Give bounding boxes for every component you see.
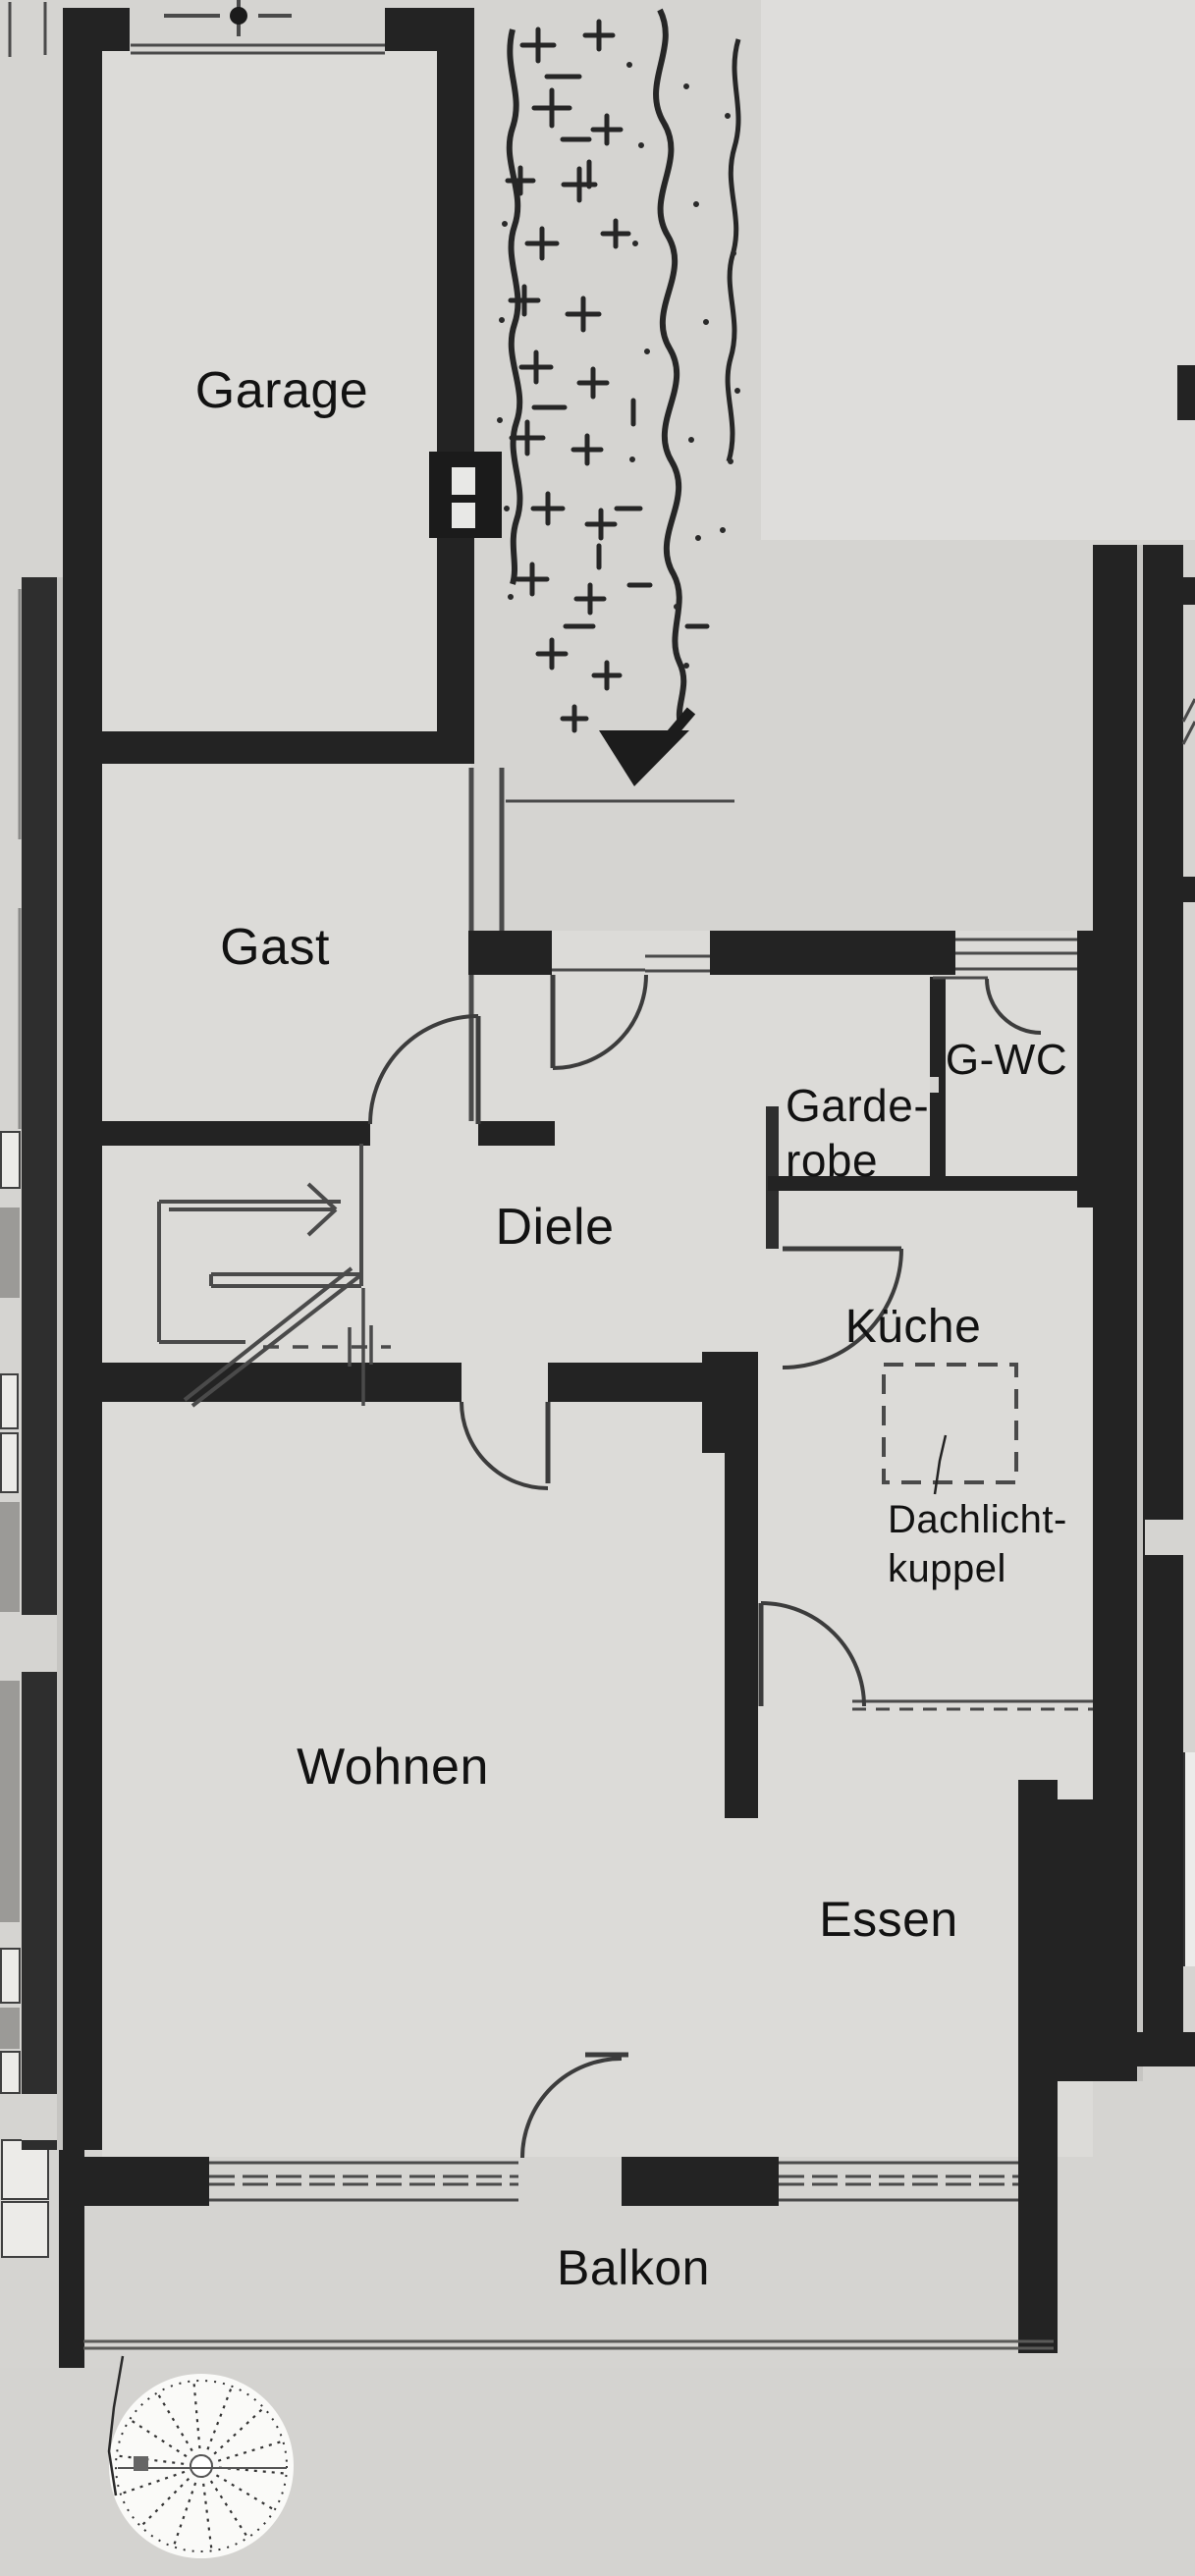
wall-party-inner (1093, 545, 1137, 2081)
wall-right-stub-b (1183, 877, 1195, 902)
floorplan-scan: Garage Gast Diele Garde- robe G-WC Küche… (0, 0, 1195, 2576)
wall-wohnen-essen-divider (725, 1394, 758, 1818)
wall-neighbor-balcony-stub (1093, 2032, 1195, 2066)
room-label-essen: Essen (819, 1895, 957, 1944)
wall-diele-south-a (102, 1363, 462, 1402)
neighbor-window-box (2, 2202, 48, 2257)
neighbor-wall-piece (0, 1207, 20, 1298)
right-edge-window-mark (1183, 699, 1195, 744)
wall-garage-east (437, 8, 474, 764)
room-label-diele: Diele (496, 1202, 615, 1253)
annotation-label-dachlichtkuppel-line2: kuppel (888, 1549, 1006, 1588)
wall-garage-south (63, 731, 474, 764)
neighbor-wall-piece (0, 2008, 20, 2049)
wall-front-left (468, 931, 552, 975)
wall-garage-top-right (385, 8, 437, 51)
room-label-wohnen: Wohnen (297, 1742, 489, 1793)
wall-joint-left (57, 577, 63, 2150)
fixture-window-b (452, 503, 475, 528)
wall-shaft (1058, 1799, 1093, 2081)
room-label-gast: Gast (220, 922, 330, 973)
spiral-stair-newel (190, 2455, 212, 2477)
room-label-garage: Garage (195, 365, 368, 416)
neighbor-wall-window-gap (22, 1615, 57, 1672)
spiral-stair-post (134, 2456, 148, 2471)
south-window-mid-lines (209, 2176, 1018, 2184)
wall-essen-east (1018, 1780, 1058, 2353)
garage-fixture-box (429, 452, 502, 538)
wall-neighbor-left (22, 577, 57, 2150)
south-window-lines (209, 2163, 1018, 2200)
neighbor-wall-piece (0, 1502, 20, 1612)
wall-garage-top-left (63, 8, 130, 51)
hedge-wavy-left (510, 29, 520, 584)
garage-door-lines (131, 45, 385, 53)
survey-cross (164, 0, 292, 36)
neighbor-window-box (1, 1433, 18, 1492)
wall-gwc-east (1077, 931, 1095, 1207)
dimension-ticks (10, 2, 45, 57)
annotation-label-dachlichtkuppel-line1: Dachlicht- (888, 1500, 1067, 1539)
floorplan-drawing (0, 0, 1195, 2576)
neighbor-wall-window-gap (22, 2094, 57, 2140)
neighbor-window-box (1, 2052, 20, 2093)
neighbor-wall-piece (0, 1681, 20, 1922)
garden-path-texture (497, 10, 740, 786)
wall-south-pillar-mid (622, 2157, 779, 2206)
room-label-gwc: G-WC (946, 1039, 1067, 1082)
hedge-wavy-right (656, 10, 683, 726)
wall-party-outer (1143, 545, 1183, 2066)
vestibule-partition (471, 768, 502, 931)
hedge-wavy-outer (728, 39, 738, 461)
wall-right-edge-block (1177, 365, 1195, 420)
wall-west (63, 8, 102, 2150)
entrance-arrow (599, 730, 689, 786)
garderobe-divider-notch (930, 1077, 939, 1093)
wall-gast-south-a (102, 1121, 370, 1146)
fixture-window-a (452, 467, 475, 495)
neighbor-window-box (1, 1132, 20, 1188)
wall-party-joint (1137, 545, 1143, 2081)
balcony-edge-lines (83, 2341, 1054, 2348)
room-label-garderobe-line2: robe (786, 1138, 878, 1183)
neighbor-window-box (1, 1949, 20, 2003)
wall-right-stub-a (1183, 577, 1195, 605)
right-edge-slot (1184, 1752, 1195, 1966)
room-label-kueche: Küche (845, 1304, 982, 1351)
wall-front-right (710, 931, 955, 975)
wall-diele-south-b (548, 1363, 725, 1402)
wall-gast-south-b (478, 1121, 555, 1146)
room-label-balkon: Balkon (557, 2243, 710, 2292)
party-wall-niche (1145, 1520, 1183, 1555)
paving-dash-marks (534, 77, 707, 626)
room-label-garderobe-line1: Garde- (786, 1083, 929, 1128)
neighbor-window-box (1, 1374, 18, 1428)
survey-cross-dot (230, 7, 247, 25)
paper-patch-top-right (761, 0, 1195, 540)
wall-south-pillar-west (59, 2157, 209, 2206)
